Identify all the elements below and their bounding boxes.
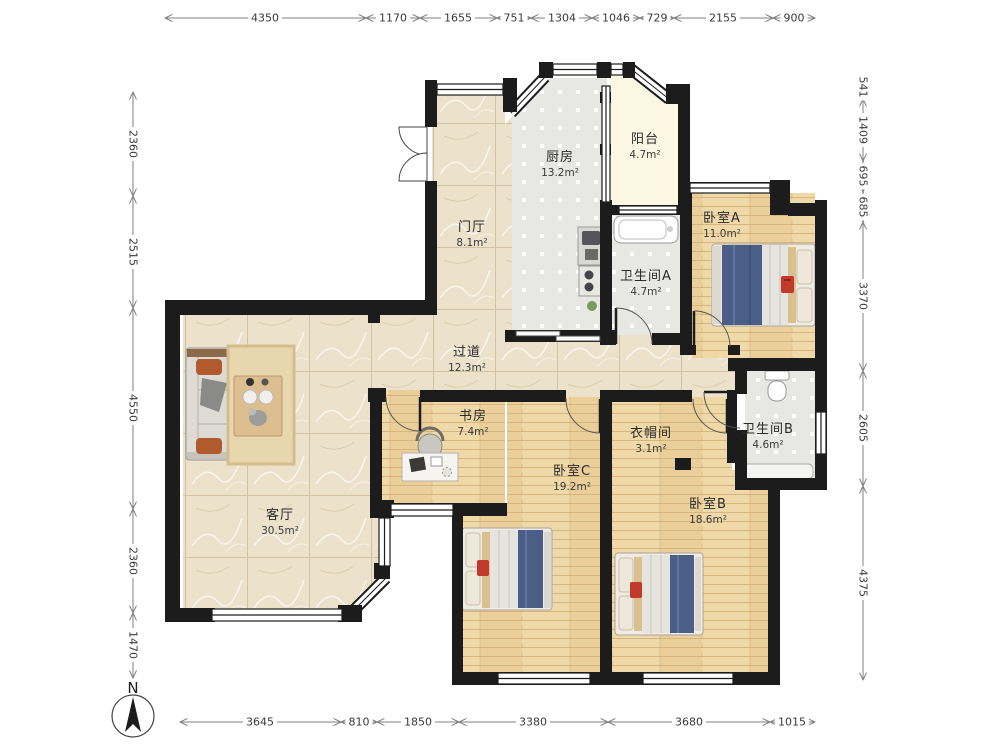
entry-double-door [399, 127, 427, 181]
dim-top-1: 1170 [376, 12, 410, 25]
window-kitchen-top [553, 64, 597, 75]
dim-bottom-2: 1850 [401, 716, 435, 729]
room-label-bedroom-b: 卧室B18.6m² [689, 497, 727, 527]
dim-bottom-3: 3380 [516, 716, 550, 729]
dim-top-4: 1304 [545, 12, 579, 25]
bathtub-bathroom-a [614, 216, 678, 243]
dim-left-3: 2360 [127, 544, 140, 578]
dim-right-3: 685 [857, 194, 870, 221]
north-label: N [127, 679, 138, 697]
floor-plan-drawing [0, 0, 1000, 750]
dim-top-7: 2155 [706, 12, 740, 25]
north-arrow-icon [112, 695, 154, 737]
dim-left-1: 2515 [127, 235, 140, 269]
window-bathroom-b-right [816, 412, 826, 454]
bed-bedroom-c [462, 528, 552, 610]
dim-right-1: 1409 [857, 113, 870, 147]
room-label-bedroom-c: 卧室C19.2m² [553, 464, 591, 494]
room-label-hallway: 过道12.3m² [448, 345, 486, 375]
dim-right-2: 695 [857, 163, 870, 190]
dim-right-0: 541 [857, 74, 870, 101]
dim-bottom-1: 810 [346, 716, 373, 729]
dim-top-6: 729 [644, 12, 671, 25]
dim-left-2: 4550 [127, 391, 140, 425]
dim-top-2: 1655 [441, 12, 475, 25]
living-room-sofa [186, 348, 230, 460]
window-balcony-top [611, 64, 623, 75]
room-label-kitchen: 厨房13.2m² [541, 150, 579, 180]
dim-bottom-5: 1015 [775, 716, 809, 729]
bed-bedroom-a [712, 244, 815, 326]
window-foyer-top [437, 84, 503, 95]
dim-right-6: 4375 [857, 566, 870, 600]
dim-left-4: 1470 [127, 628, 140, 662]
bed-bedroom-b [615, 553, 703, 635]
dim-bottom-4: 3680 [672, 716, 706, 729]
room-label-bathroom-b: 卫生间B4.6m² [742, 422, 794, 452]
window-bedroom-a-top [690, 183, 770, 193]
room-label-balcony: 阳台4.7m² [629, 132, 660, 162]
dim-top-8: 900 [781, 12, 808, 25]
window-kitchen-balcony [602, 86, 610, 202]
window-bay-bottom [212, 609, 342, 621]
dim-right-4: 3370 [857, 279, 870, 313]
dim-top-0: 4350 [248, 12, 282, 25]
window-bedroom-b-bottom [643, 673, 733, 684]
room-label-foyer: 门厅8.1m² [456, 220, 487, 250]
room-label-living-room: 客厅30.5m² [261, 508, 299, 538]
dim-top-3: 751 [501, 12, 528, 25]
room-label-bedroom-a: 卧室A11.0m² [703, 211, 741, 241]
dim-bottom-0: 3645 [243, 716, 277, 729]
room-label-study: 书房7.4m² [457, 409, 488, 439]
window-bedroom-c-bottom [498, 673, 590, 684]
room-label-bathroom-a: 卫生间A4.7m² [620, 269, 672, 299]
dim-right-5: 2605 [857, 411, 870, 445]
window-balcony-bottom [619, 206, 677, 214]
floor-plan-screenshot: 厨房13.2m² 阳台4.7m² 门厅8.1m² 卧室A11.0m² 卫生间A4… [0, 0, 1000, 750]
window-bay-vertical [379, 518, 390, 566]
window-study-bottom [391, 504, 453, 516]
dim-top-5: 1046 [599, 12, 633, 25]
coffee-table [234, 376, 282, 436]
room-label-cloakroom: 衣帽间3.1m² [630, 426, 672, 456]
dim-left-0: 2360 [127, 127, 140, 161]
